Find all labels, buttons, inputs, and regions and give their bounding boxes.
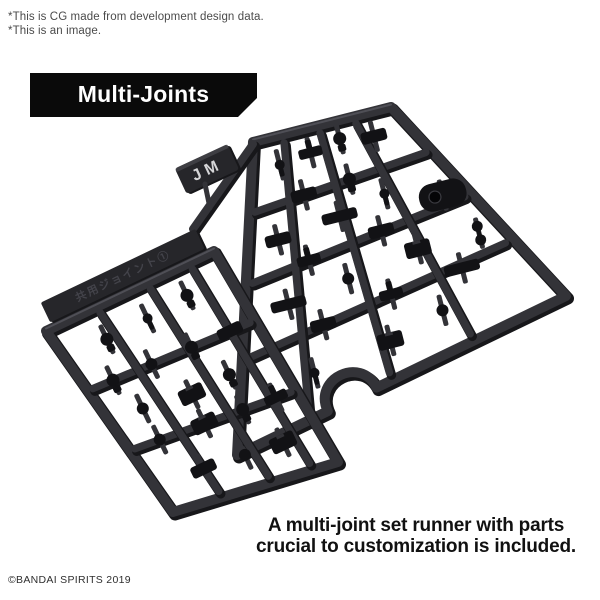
product-image-page: *This is CG made from development design… <box>0 0 600 600</box>
caption-line-1: A multi-joint set runner with parts <box>240 516 592 537</box>
part-block <box>365 212 398 249</box>
caption-text: A multi-joint set runner with parts cruc… <box>240 516 592 557</box>
copyright-text: ©BANDAI SPIRITS 2019 <box>8 574 131 586</box>
part-doubleball <box>470 216 489 250</box>
part-ballpeg <box>174 278 200 312</box>
part-peg <box>136 302 159 335</box>
runner-emboss-label: 共用ジョイント① <box>41 228 208 324</box>
part-hblock <box>186 403 223 443</box>
sprue-runner-figure: JM共用ジョイント① <box>0 0 600 600</box>
sprue-svg: JM共用ジョイント① <box>0 0 600 600</box>
caption-line-2: crucial to customization is included. <box>240 537 592 558</box>
